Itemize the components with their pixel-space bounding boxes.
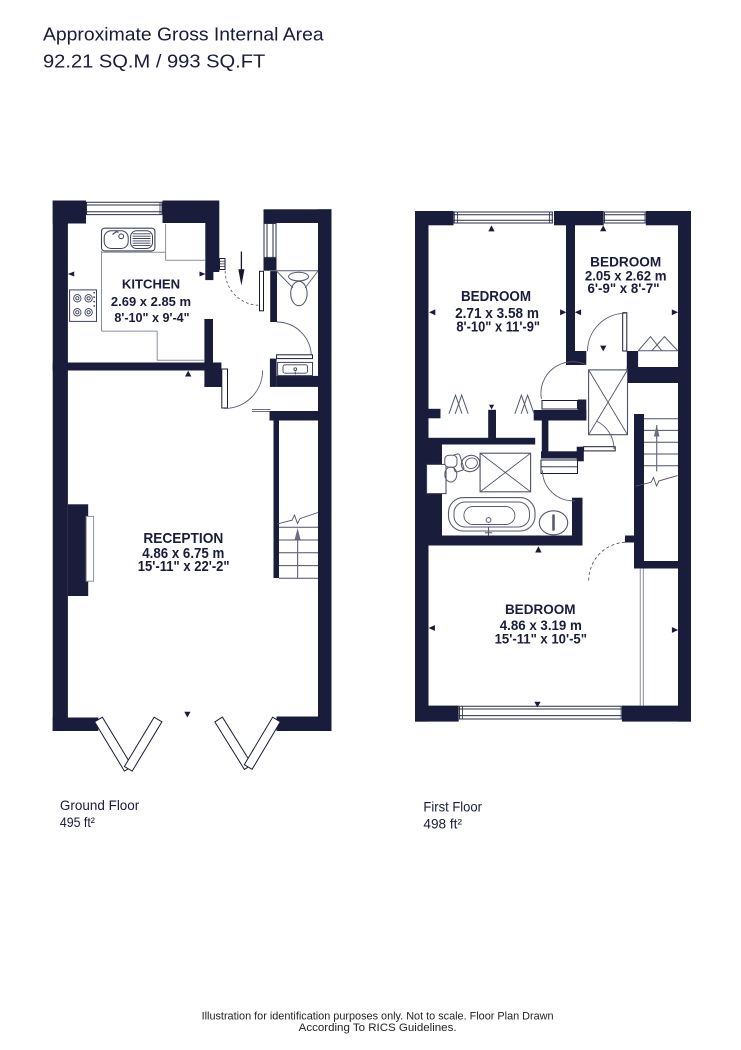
svg-text:498 ft²: 498 ft² [423,816,462,832]
svg-text:BEDROOM: BEDROOM [505,602,576,618]
svg-text:BEDROOM: BEDROOM [590,255,661,270]
svg-text:Illustration for identificatio: Illustration for identification purposes… [202,1011,554,1023]
svg-text:KITCHEN: KITCHEN [122,278,180,292]
svg-text:15'-11" x 10'-5": 15'-11" x 10'-5" [495,632,587,648]
svg-text:6'-9" x 8'-7": 6'-9" x 8'-7" [588,281,660,296]
svg-text:495 ft²: 495 ft² [60,814,95,830]
svg-text:8'-10" x 11'-9": 8'-10" x 11'-9" [456,320,540,336]
svg-text:2.69 x 2.85 m: 2.69 x 2.85 m [111,295,191,309]
svg-text:Approximate Gross Internal Are: Approximate Gross Internal Area [43,25,325,45]
svg-text:Ground Floor: Ground Floor [60,797,140,813]
svg-text:According To RICS Guidelines.: According To RICS Guidelines. [299,1022,457,1034]
svg-text:8'-10" x 9'-4": 8'-10" x 9'-4" [114,311,189,325]
svg-text:92.21 SQ.M / 993 SQ.FT: 92.21 SQ.M / 993 SQ.FT [43,52,265,72]
svg-text:15'-11" x 22'-2": 15'-11" x 22'-2" [138,558,230,575]
svg-text:BEDROOM: BEDROOM [461,289,531,305]
svg-text:First Floor: First Floor [423,799,482,815]
